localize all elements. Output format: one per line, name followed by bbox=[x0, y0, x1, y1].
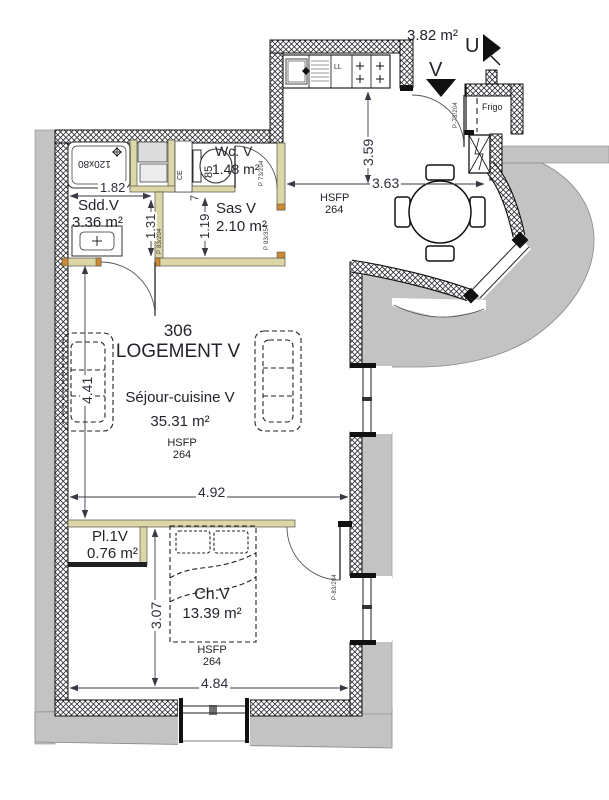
door-tag-sas: P 83/354 bbox=[264, 224, 270, 250]
chair-bottom bbox=[426, 246, 454, 261]
sdd-room-area: 3.36 m² bbox=[72, 215, 123, 230]
hsfp-value-entry: 264 bbox=[325, 205, 343, 216]
dim-4-84: 4.84 bbox=[199, 676, 230, 690]
chair-right bbox=[470, 197, 485, 227]
bed bbox=[170, 526, 256, 642]
water-heater bbox=[175, 141, 192, 192]
wc-width-label: 85 bbox=[204, 166, 215, 178]
exterior-walls bbox=[55, 40, 523, 716]
wc-room-area: 1.48 m² bbox=[212, 162, 259, 176]
pillow bbox=[176, 531, 210, 553]
wc-room-name: Wc. V bbox=[215, 144, 252, 158]
sejour-room-area: 35.31 m² bbox=[150, 414, 209, 429]
dim-3-63: 3.63 bbox=[370, 176, 401, 190]
door-tag-entry: P-73/204 bbox=[453, 102, 459, 128]
dim-1-19: 1.19 bbox=[198, 212, 211, 241]
door-tag-wc: P 73/204 bbox=[259, 160, 265, 186]
unit-number: 306 bbox=[164, 322, 192, 339]
sofa-right bbox=[255, 331, 301, 431]
kitchen-counter bbox=[283, 55, 390, 88]
dim-4-92: 4.92 bbox=[196, 485, 227, 499]
bedroom-door-swing bbox=[287, 527, 340, 580]
hsfp-value-chambre: 264 bbox=[203, 657, 221, 668]
fridge-label: Frigo bbox=[482, 103, 503, 112]
vent-shaft bbox=[469, 135, 490, 173]
water-heater-label: CE bbox=[177, 170, 184, 180]
sdd-room-name: Sdd.V bbox=[78, 198, 119, 213]
floorplan-page: 3.82 m² U V Frigo LL Wc. V 1.48 m² 85 CE… bbox=[0, 0, 609, 800]
down-arrow-icon bbox=[426, 79, 456, 97]
sejour-room-name: Séjour-cuisine V bbox=[125, 390, 234, 405]
dining-table bbox=[395, 165, 485, 261]
placard-room-name: Pl.1V bbox=[92, 529, 128, 544]
placard-room-area: 0.76 m² bbox=[87, 546, 138, 561]
entry-area-label: 3.82 m² bbox=[407, 28, 458, 43]
door-tag-chambre: P-83/204 bbox=[332, 574, 338, 600]
door-tag-sdd: P 83/204 bbox=[157, 228, 163, 254]
table-top bbox=[409, 181, 471, 243]
sdd-door-swing bbox=[101, 262, 155, 316]
chair-top bbox=[426, 165, 454, 180]
shower-size-label: 120x80 bbox=[78, 158, 111, 168]
chambre-room-area: 13.39 m² bbox=[182, 606, 241, 621]
dim-1-31: 1.31 bbox=[144, 212, 157, 241]
dim-7: 7 bbox=[190, 193, 201, 203]
stair-down-label: V bbox=[429, 60, 442, 80]
dim-4-41: 4.41 bbox=[80, 375, 94, 406]
chambre-room-name: Ch.V bbox=[194, 587, 230, 603]
unit-name: LOGEMENT V bbox=[116, 342, 240, 361]
duct-cells bbox=[138, 141, 192, 192]
sas-room-area: 2.10 m² bbox=[216, 219, 267, 234]
dim-3-07: 3.07 bbox=[149, 600, 163, 631]
hsfp-label-sejour: HSFP bbox=[167, 438, 196, 449]
hsfp-label-entry: HSFP bbox=[320, 193, 349, 204]
hsfp-value-sejour: 264 bbox=[173, 450, 191, 461]
dim-3-59: 3.59 bbox=[361, 137, 375, 168]
sas-room-name: Sas V bbox=[216, 201, 256, 216]
stair-up-label: U bbox=[465, 36, 479, 56]
washer-label: LL bbox=[334, 64, 342, 71]
dim-1-82: 1.82 bbox=[98, 181, 127, 194]
chair-left bbox=[395, 197, 410, 227]
hsfp-label-chambre: HSFP bbox=[197, 645, 226, 656]
pillow bbox=[214, 531, 248, 553]
